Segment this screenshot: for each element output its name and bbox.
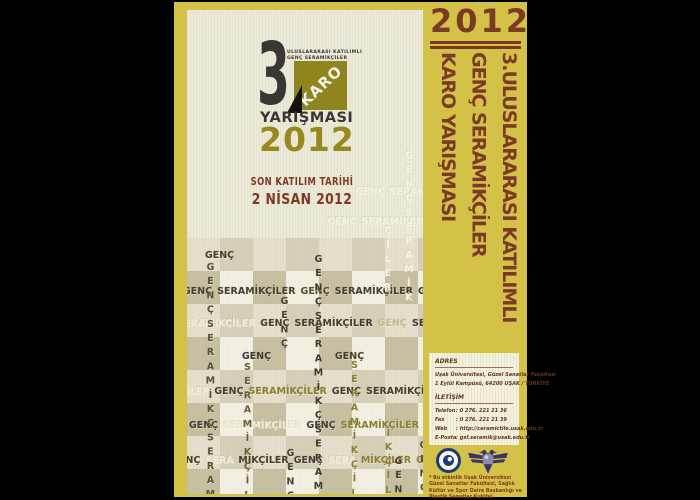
contact-row-eposta: E-Posta : gsf.seramik@usak.edu.tr bbox=[435, 434, 513, 443]
collage-word-run: GENÇ bbox=[285, 448, 296, 494]
collage-word-run: ÇİLER bbox=[382, 225, 393, 296]
side-vertical-title: 3.ULUSLARARASI KATILIMLI GENÇ SERAMİKÇİL… bbox=[430, 52, 522, 372]
deadline-block: SON KATILIM TARİHİ 2 NİSAN 2012 bbox=[210, 176, 394, 208]
competition-poster: GENÇGENÇGENÇGENÇSERAMGENÇSERAMİKÇİLEGENÇ… bbox=[174, 2, 527, 497]
logo-year: 2012 bbox=[259, 123, 355, 156]
collage-word-run: GENÇ bbox=[418, 440, 423, 494]
adres-label: ADRES bbox=[435, 358, 513, 368]
adres-line1: Uşak Üniversitesi, Güzel Sanatlar Fakült… bbox=[435, 371, 513, 380]
adres-line2: 1 Eylül Kampüsü, 64200 UŞAK / TÜRKİYE bbox=[435, 380, 513, 389]
footnote-line1: * Bu etkinlik Uşak Üniversitesi Güzel Sa… bbox=[429, 476, 522, 489]
contact-row-telefon: Telefon : 0 276. 221 21 36 bbox=[435, 407, 513, 416]
contact-row-web: Web : http://ceramictile.usak.edu.tr bbox=[435, 425, 513, 434]
collage-word-run: GENÇ bbox=[279, 296, 290, 353]
double-headed-eagle-icon bbox=[467, 447, 509, 475]
collage-word-run: GENÇSERAMİKÇSERAMİK bbox=[313, 254, 324, 494]
side-double-rule bbox=[430, 41, 521, 51]
footnote: * Bu etkinlik Uşak Üniversitesi Güzel Sa… bbox=[429, 476, 522, 500]
collage-word-run: SERAMİKÇİLER bbox=[242, 362, 253, 494]
collage-word-run: GENÇSERAMİKÇSERAMİK bbox=[205, 262, 216, 494]
side-year: 2012 bbox=[430, 4, 531, 39]
deadline-label: SON KATILIM TARİHİ bbox=[210, 176, 394, 188]
collage-word-run: SERAMİKÇİLER bbox=[349, 360, 360, 494]
karo-tile-mark: KARO bbox=[294, 61, 347, 110]
collage-word-run: GENÇ bbox=[242, 351, 276, 362]
university-seal-icon bbox=[436, 448, 461, 473]
cream-panel: GENÇGENÇGENÇGENÇSERAMGENÇSERAMİKÇİLEGENÇ… bbox=[187, 10, 423, 494]
collage-word-run: ÇİLERGENÇSERAMİKÇİLERGENÇSERAMİKÇİLER bbox=[187, 386, 423, 397]
side-title-line1: 3.ULUSLARARASI KATILIMLI bbox=[495, 52, 522, 372]
institution-logos bbox=[436, 447, 526, 477]
competition-logo: 3 ULUSLARARASI KATILIMLI GENÇ SERAMİKÇİL… bbox=[187, 10, 423, 170]
karo-label: KARO bbox=[296, 61, 346, 109]
collage-word-run: GENÇ bbox=[393, 456, 404, 494]
side-title-line3: KARO YARIŞMASI bbox=[434, 52, 461, 372]
deadline-date: 2 NİSAN 2012 bbox=[210, 190, 394, 208]
logo-number: 3 bbox=[257, 32, 290, 118]
collage-word-run: SERAMİKÇİLERGENÇSERAMİKÇİLERGENÇSERA bbox=[187, 318, 423, 329]
stage: GENÇGENÇGENÇGENÇSERAMGENÇSERAMİKÇİLEGENÇ… bbox=[0, 0, 700, 500]
contact-box: ADRES Uşak Üniversitesi, Güzel Sanatlar … bbox=[429, 353, 519, 445]
contact-row-fax: Fax : 0 276. 221 21 39 bbox=[435, 416, 513, 425]
collage-word-run: GENÇ bbox=[205, 250, 239, 261]
footnote-line2: Kültür ve Spor Daire Başkanlığı ve Plast… bbox=[429, 489, 522, 500]
side-title-line2: GENÇ SERAMİKÇİLER bbox=[465, 52, 492, 372]
collage-word-run: GENÇSERAMİK bbox=[403, 150, 414, 306]
iletisim-label: İLETİŞİM bbox=[435, 394, 513, 404]
